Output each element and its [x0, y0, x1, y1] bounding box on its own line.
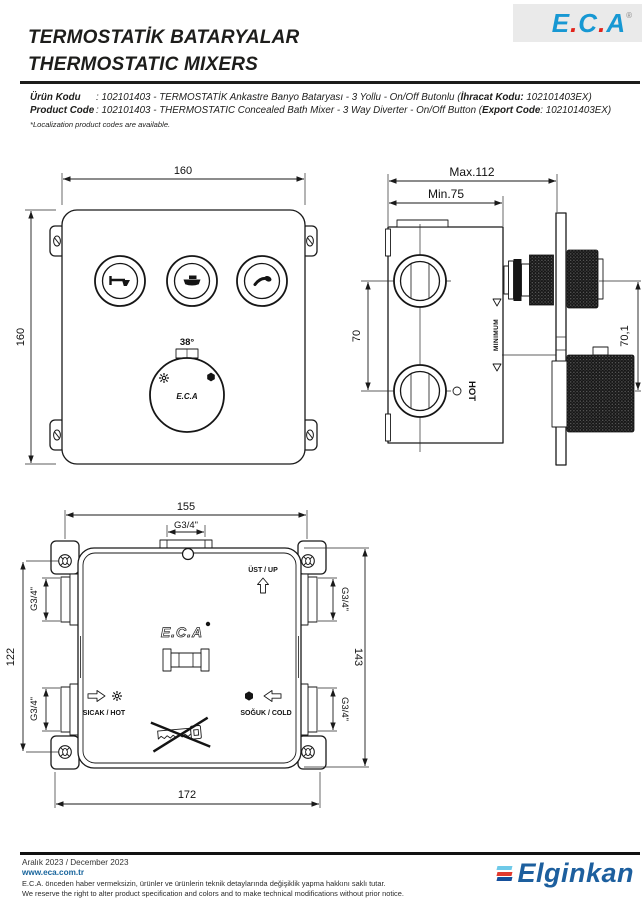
dim-right-top-port: G3/4" — [339, 587, 350, 611]
elginkan-bars-icon — [497, 866, 512, 881]
knob-brand: E.C.A — [176, 392, 198, 401]
minimum-label: MINIMUM — [493, 319, 500, 351]
temp-38-label: 38° — [180, 337, 195, 348]
localization-note: *Localization product codes are availabl… — [30, 119, 611, 130]
screw-icon — [54, 236, 61, 246]
footer-date: Aralık 2023 / December 2023 — [22, 858, 129, 867]
dim-max-depth: Max.112 — [449, 165, 494, 179]
dim-top-port: G3/4" — [174, 520, 198, 531]
handshower-button — [237, 256, 287, 306]
dim-right-bottom-port: G3/4" — [339, 697, 350, 721]
screw-icon — [307, 430, 314, 440]
eca-logo-text: E.C.A® — [552, 10, 632, 36]
title-english: THERMOSTATIC MIXERS — [28, 51, 299, 78]
screw-icon — [302, 555, 315, 568]
hot-marker — [453, 387, 461, 395]
product-code-line-en: Product Code: 102101403 - THERMOSTATIC C… — [30, 104, 611, 117]
footer-website-link[interactable]: www.eca.com.tr — [22, 868, 84, 877]
back-view: ÜST / UP E.C.A SICAK / HOT SOĞUK / COLD — [5, 501, 369, 808]
screw-icon — [59, 555, 72, 568]
bathtub-button — [167, 256, 217, 306]
dim-port-spacing: 70 — [351, 330, 363, 342]
dim-box-height: 143 — [352, 648, 364, 666]
screw-icon — [59, 746, 72, 759]
product-info: Ürün Kodu: 102101403 - TERMOSTATİK Ankas… — [30, 91, 611, 130]
screw-icon — [307, 236, 314, 246]
elginkan-logo-text: Elginkan — [517, 858, 634, 889]
technical-drawings: E.C.A 38° 160 160 Max.112 Min.75 — [0, 150, 642, 850]
dim-left-top-port: G3/4" — [29, 587, 40, 611]
screw-icon — [302, 746, 315, 759]
dim-screw-spacing-h: 155 — [177, 501, 195, 513]
cold-inlet-label: SOĞUK / COLD — [240, 708, 291, 717]
inlet-port — [394, 365, 446, 417]
dim-handle-spacing: 70,1 — [619, 325, 631, 346]
inlet-port — [394, 255, 446, 307]
footer-disclaimer-tr: E.C.A. önceden haber vermeksizin, ürünle… — [22, 879, 386, 888]
title-turkish: TERMOSTATİK BATARYALAR — [28, 24, 299, 51]
up-label: ÜST / UP — [248, 565, 278, 574]
diverter-handle — [567, 250, 598, 308]
dim-screw-spacing-v: 122 — [5, 648, 17, 666]
dim-front-height: 160 — [15, 328, 27, 346]
dim-front-width: 160 — [174, 165, 192, 177]
hot-inlet-label: SICAK / HOT — [83, 710, 126, 717]
footer-divider — [20, 852, 640, 855]
product-code-line-tr: Ürün Kodu: 102101403 - TERMOSTATİK Ankas… — [30, 91, 611, 104]
screw-icon — [54, 430, 61, 440]
spout-button — [95, 256, 145, 306]
dim-left-bottom-port: G3/4" — [29, 697, 40, 721]
front-view: E.C.A 38° 160 160 — [15, 165, 317, 464]
hot-label: HOT — [466, 381, 477, 401]
elginkan-logo: Elginkan — [497, 858, 634, 889]
temperature-handle — [567, 355, 634, 432]
page-title: TERMOSTATİK BATARYALAR THERMOSTATIC MIXE… — [28, 24, 299, 78]
eca-logo: E.C.A® — [513, 4, 642, 42]
box-brand: E.C.A — [161, 624, 203, 640]
side-view: Max.112 Min.75 70 MINIMUM HOT — [351, 165, 641, 465]
registered-mark: ® — [626, 11, 632, 20]
datasheet-page: E.C.A® TERMOSTATİK BATARYALAR THERMOSTAT… — [0, 0, 642, 900]
valve-stem-upper — [504, 255, 554, 305]
top-port — [160, 540, 212, 548]
footer-disclaimer-en: We reserve the right to alter product sp… — [22, 889, 404, 898]
dim-min-depth: Min.75 — [428, 187, 464, 201]
dim-overall-width: 172 — [178, 789, 196, 801]
title-divider — [20, 81, 640, 84]
